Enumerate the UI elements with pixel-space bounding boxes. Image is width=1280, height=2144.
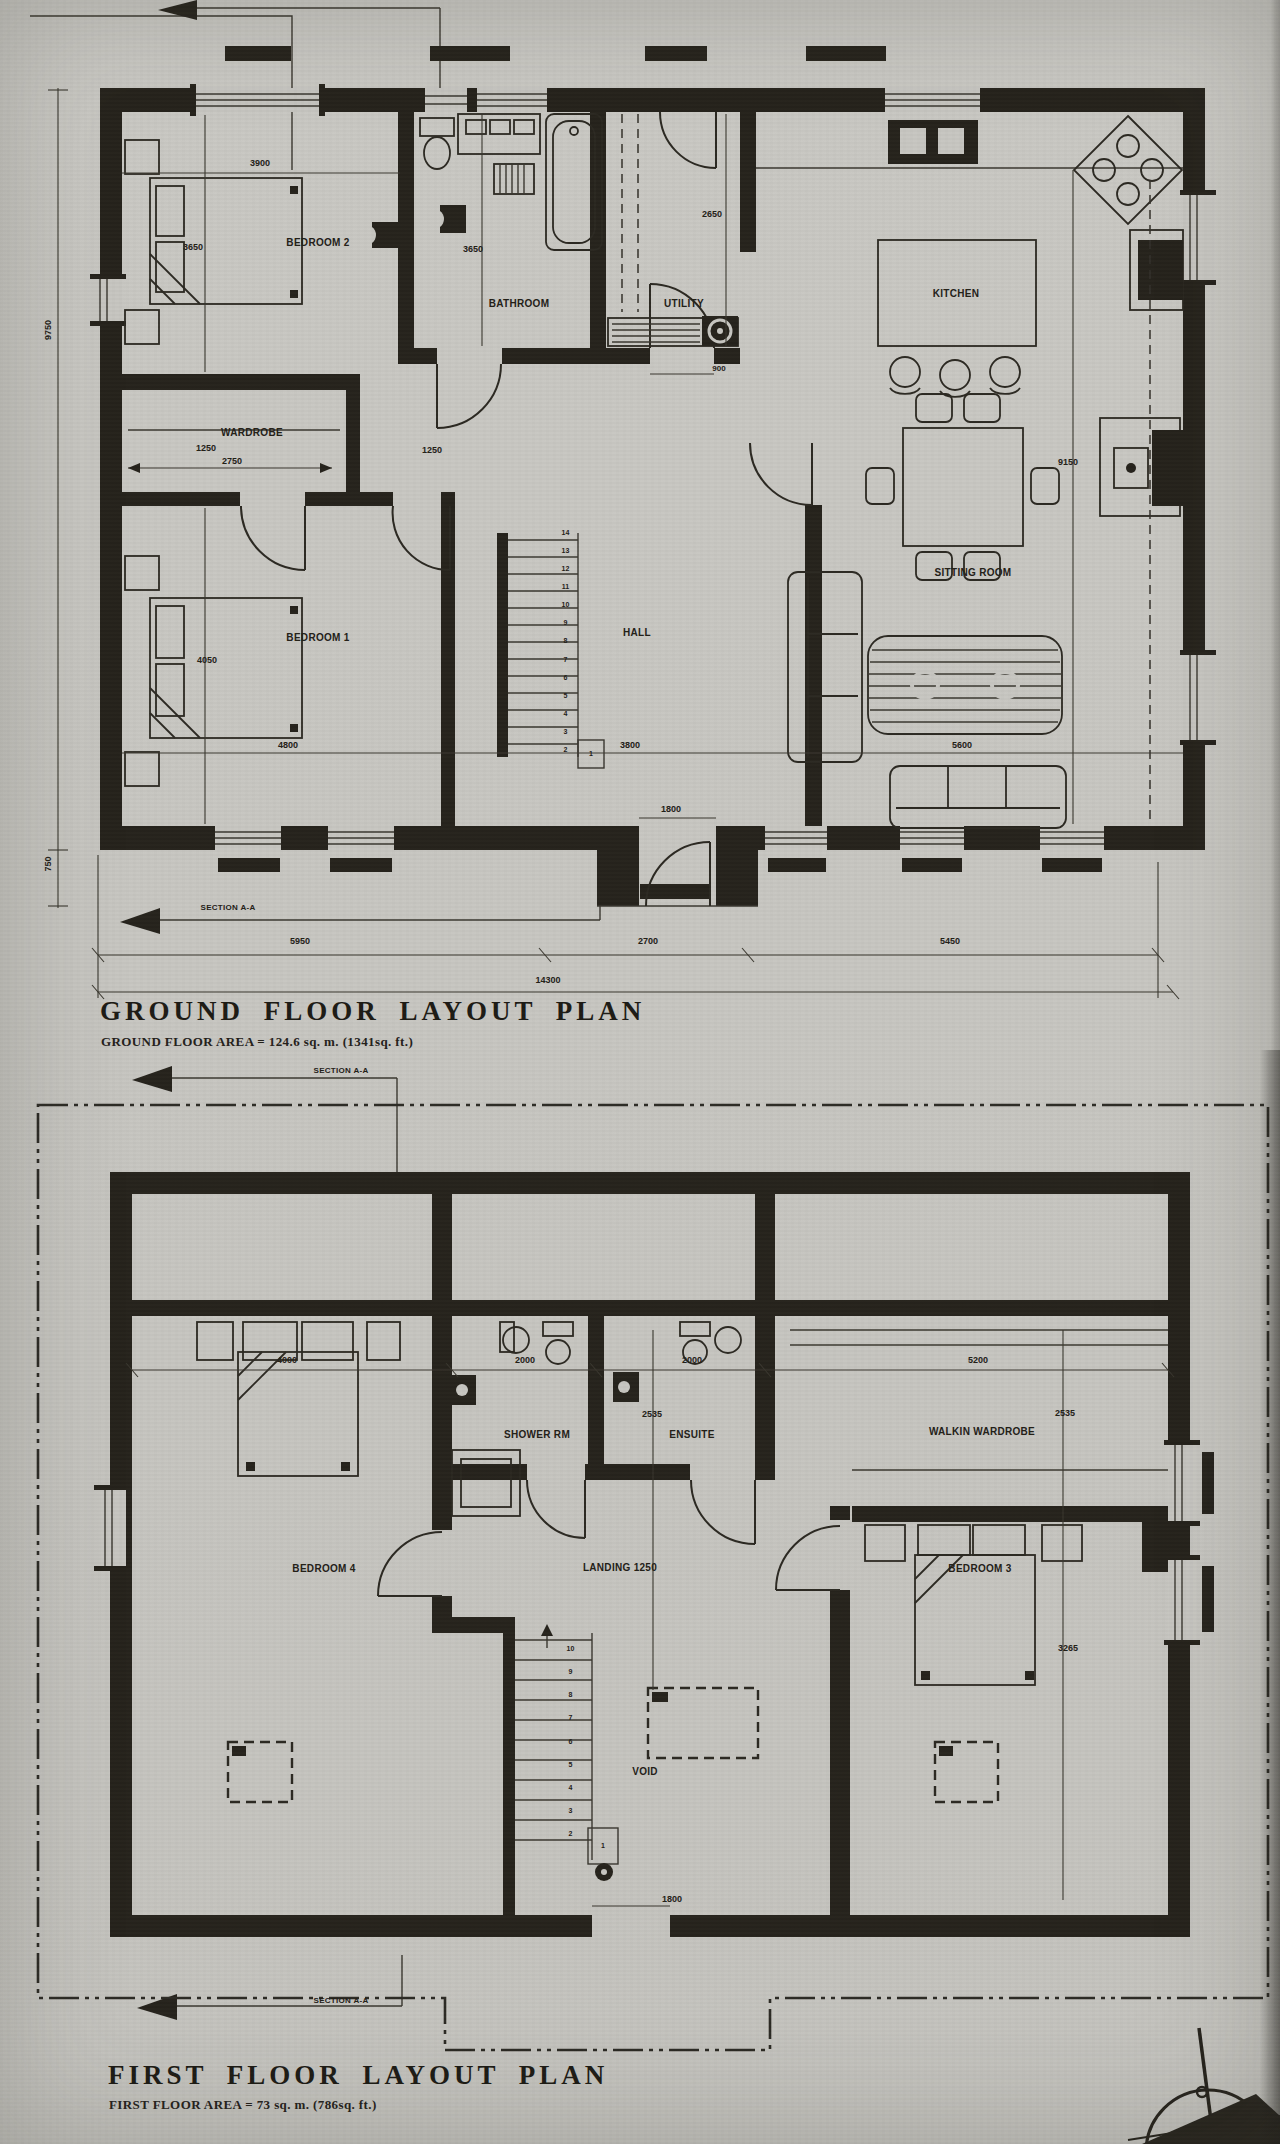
ground-floor-title: GROUND FLOOR LAYOUT PLAN — [100, 996, 645, 1027]
room-label-bedroom2: BEDROOM 2 — [286, 237, 349, 248]
stair-step: 6 — [569, 1738, 573, 1745]
section-line-first-top — [132, 1066, 397, 1172]
room-label-wardrobe: WARDROBE — [221, 427, 283, 438]
window — [1040, 826, 1104, 850]
first-stair-numbers: 10 9 8 7 6 5 4 3 2 — [563, 1645, 578, 1837]
window — [1164, 1555, 1200, 1645]
dim-5950: 5950 — [290, 936, 310, 946]
window-tag — [902, 858, 962, 872]
bed-bedroom1 — [125, 556, 302, 786]
section-label-first-bottom: SECTION A-A — [313, 1996, 368, 2005]
dim-5200: 5200 — [968, 1355, 988, 1365]
compass-icon — [1128, 2028, 1280, 2144]
scan-edge-shadow — [1270, 0, 1280, 1050]
stair-step: 3 — [564, 728, 568, 735]
stair-step: 8 — [569, 1691, 573, 1698]
section-line-ground-top — [30, 0, 440, 170]
window — [425, 88, 467, 112]
dim-3650-bedroom2: 3650 — [183, 242, 203, 252]
stair-step: 9 — [569, 1668, 573, 1675]
window — [900, 826, 964, 850]
dim-4800: 4800 — [278, 740, 298, 750]
section-label-ground: SECTION A-A — [200, 903, 255, 912]
dim-750: 750 — [43, 856, 53, 871]
section-label-first-top: SECTION A-A — [313, 1066, 368, 1075]
window-tag — [218, 858, 280, 872]
stair-step: 9 — [564, 619, 568, 626]
ground-floor-area-note: GROUND FLOOR AREA = 124.6 sq. m. (1341sq… — [101, 1034, 413, 1050]
hob — [1074, 116, 1182, 224]
bed-bedroom2 — [125, 140, 302, 344]
stair-step: 14 — [562, 529, 570, 536]
stair-step: 4 — [569, 1784, 573, 1791]
room-label-bedroom4: BEDROOM 4 — [292, 1563, 355, 1574]
shower-tray — [452, 1450, 520, 1516]
dim-1800-entrance: 1800 — [661, 804, 681, 814]
dim-2535-right: 2535 — [1055, 1408, 1075, 1418]
stair-step: 7 — [569, 1714, 573, 1721]
room-label-kitchen: KITCHEN — [933, 288, 980, 299]
dim-3650-bathroom: 3650 — [463, 244, 483, 254]
ground-floor-furniture — [125, 114, 1183, 828]
rug — [868, 636, 1062, 734]
chimney-void-boxes — [228, 1688, 998, 1802]
dim-3265: 3265 — [1058, 1643, 1078, 1653]
bed-bedroom4 — [238, 1352, 358, 1476]
window — [215, 826, 281, 850]
dim-2000-ensuite: 2000 — [682, 1355, 702, 1365]
stair-step: 6 — [564, 674, 568, 681]
dim-4050: 4050 — [197, 655, 217, 665]
dim-14300: 14300 — [535, 975, 560, 985]
room-label-ensuite: ENSUITE — [669, 1429, 714, 1440]
window — [885, 88, 980, 112]
window-tag — [806, 46, 886, 61]
section-line-first-bottom — [137, 1955, 402, 2020]
dim-2000-shower: 2000 — [515, 1355, 535, 1365]
dim-2535-mid: 2535 — [642, 1409, 662, 1419]
window — [94, 1485, 130, 1571]
stair-step: 5 — [564, 692, 568, 699]
dim-9750: 9750 — [43, 320, 53, 340]
meter-box — [372, 222, 398, 248]
ground-floor-windows — [90, 46, 1216, 899]
stair-step: 1 — [589, 750, 593, 757]
ground-stair-numbers: 14 13 12 11 10 9 8 7 6 5 4 3 2 — [558, 529, 573, 753]
stair-step: 11 — [562, 583, 569, 590]
room-label-utility: UTILITY — [664, 298, 704, 309]
window-tag — [1042, 858, 1102, 872]
stair-step: 2 — [564, 746, 568, 753]
dim-1250-hall: 1250 — [422, 445, 442, 455]
first-floor-stairs — [503, 1623, 618, 1915]
ensuite-fixtures — [613, 1322, 741, 1402]
stair-step: 5 — [569, 1761, 573, 1768]
bed-bedroom3 — [865, 1525, 1082, 1685]
window — [328, 826, 394, 850]
dim-2700: 2700 — [638, 936, 658, 946]
window — [190, 84, 325, 116]
walkin-wardrobe-shelves — [790, 1330, 1168, 1470]
dim-1800-stair: 1800 — [662, 1894, 682, 1904]
stair-step: 10 — [562, 601, 570, 608]
dim-5450: 5450 — [940, 936, 960, 946]
window — [477, 88, 547, 112]
dim-1250-wardrobe: 1250 — [196, 443, 216, 453]
stair-step: 10 — [567, 1645, 575, 1652]
dim-900: 900 — [712, 364, 725, 373]
meter-box — [440, 205, 466, 233]
stair-step: 13 — [562, 547, 570, 554]
kitchen-sink — [888, 120, 978, 164]
dim-9150: 9150 — [1058, 457, 1078, 467]
room-label-bedroom1: BEDROOM 1 — [286, 632, 349, 643]
dim-3900: 3900 — [250, 158, 270, 168]
room-label-shower-rm: SHOWER RM — [504, 1429, 570, 1440]
window — [765, 826, 827, 850]
radiator — [494, 164, 534, 194]
dim-2750: 2750 — [222, 456, 242, 466]
window-tag — [1202, 1566, 1214, 1632]
stair-step: 1 — [601, 1842, 605, 1849]
room-label-sitting-room: SITTING ROOM — [935, 567, 1012, 578]
fireplace — [1100, 418, 1183, 516]
door-tag — [640, 884, 710, 899]
stair-step: 4 — [564, 710, 568, 717]
dining-set — [866, 394, 1059, 580]
window-tag — [225, 46, 291, 61]
ground-floor-walls — [100, 88, 1205, 906]
window — [1164, 1440, 1200, 1526]
window-tag — [768, 858, 826, 872]
sofa-south — [890, 766, 1066, 828]
floor-plan-sheet: BEDROOM 2 BATHROOM UTILITY KITCHEN WARDR… — [0, 0, 1280, 2144]
plan-linework — [0, 0, 1280, 2144]
sofa-west — [788, 572, 862, 762]
stair-step: 2 — [569, 1830, 573, 1837]
window — [1180, 190, 1216, 285]
meter-box — [452, 1375, 476, 1405]
window — [1180, 650, 1216, 745]
meter-box — [613, 1372, 639, 1402]
first-floor-title: FIRST FLOOR LAYOUT PLAN — [108, 2060, 608, 2091]
kitchen-island — [878, 240, 1036, 397]
stair-step: 3 — [569, 1807, 573, 1814]
room-label-bedroom3: BEDROOM 3 — [948, 1563, 1011, 1574]
room-label-landing: LANDING 1250 — [583, 1562, 657, 1573]
stair-step: 12 — [562, 565, 570, 572]
window-tag — [1202, 1452, 1214, 1514]
ground-floor-stairs — [497, 533, 604, 768]
dim-5600: 5600 — [952, 740, 972, 750]
room-label-walkin-wardrobe: WALKIN WARDROBE — [929, 1426, 1035, 1437]
room-label-bathroom: BATHROOM — [489, 298, 550, 309]
window-tag — [430, 46, 510, 61]
dim-4000: 4000 — [277, 1355, 297, 1365]
dim-2650: 2650 — [702, 209, 722, 219]
first-floor-area-note: FIRST FLOOR AREA = 73 sq. m. (786sq. ft.… — [109, 2097, 377, 2113]
shower-room-fixtures — [452, 1322, 573, 1516]
window-tag — [330, 858, 392, 872]
scan-edge-shadow — [1260, 1050, 1280, 2144]
dim-3800: 3800 — [620, 740, 640, 750]
stair-step: 8 — [564, 637, 568, 644]
window-tag — [645, 46, 707, 61]
stair-step: 7 — [564, 656, 568, 663]
room-label-void: VOID — [632, 1766, 658, 1777]
room-label-hall: HALL — [623, 627, 651, 638]
kitchen-fittings — [756, 116, 1183, 397]
window — [90, 274, 126, 326]
washing-machine — [702, 316, 738, 346]
